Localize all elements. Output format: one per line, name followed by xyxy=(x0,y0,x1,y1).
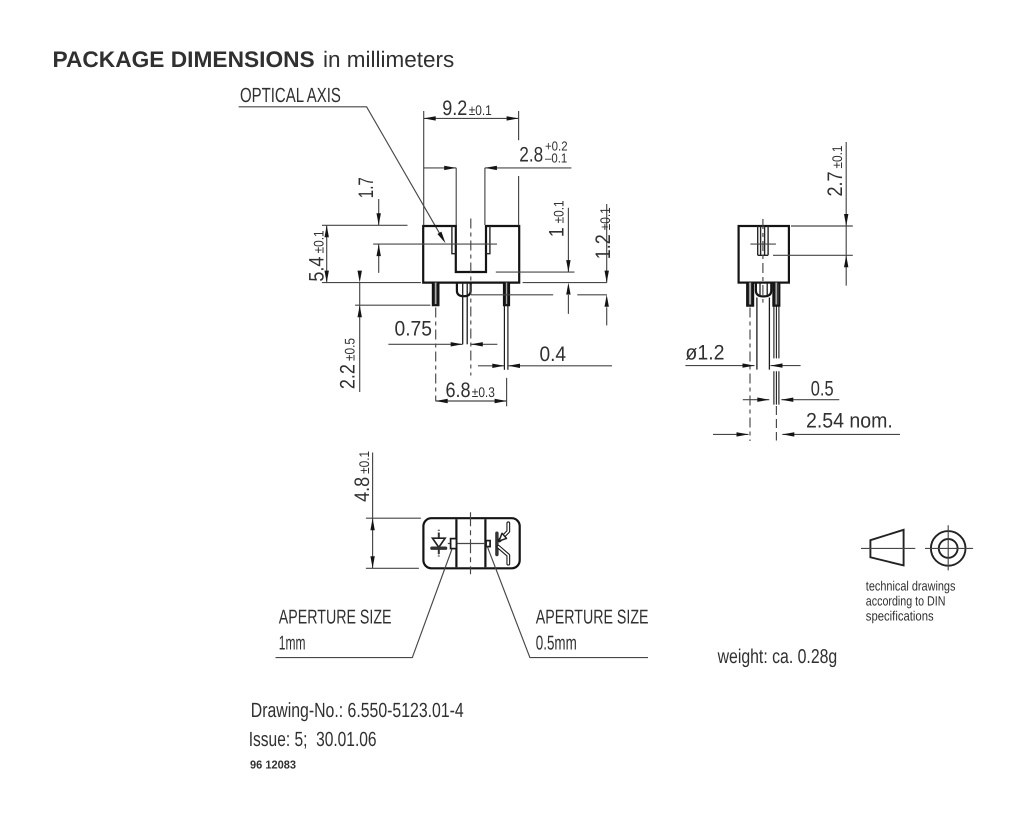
svg-text:5.4: 5.4 xyxy=(305,256,328,281)
svg-text:1.2: 1.2 xyxy=(592,234,615,259)
svg-text:0.5: 0.5 xyxy=(811,378,834,401)
svg-text:±0.1: ±0.1 xyxy=(356,451,372,474)
svg-text:1: 1 xyxy=(546,227,569,237)
svg-text:1.7: 1.7 xyxy=(355,177,378,198)
svg-text:1mm: 1mm xyxy=(279,633,306,655)
svg-text:2.54 nom.: 2.54 nom. xyxy=(806,410,893,433)
svg-text:±0.3: ±0.3 xyxy=(472,384,495,400)
svg-text:APERTURE SIZE: APERTURE SIZE xyxy=(279,606,392,628)
svg-text:9.2: 9.2 xyxy=(442,97,467,120)
svg-text:0.5mm: 0.5mm xyxy=(536,633,577,655)
svg-text:OPTICAL AXIS: OPTICAL AXIS xyxy=(240,84,341,107)
svg-text:±0.1: ±0.1 xyxy=(597,207,613,230)
svg-text:0.75: 0.75 xyxy=(395,318,432,341)
svg-text:96 12083: 96 12083 xyxy=(250,760,296,772)
svg-text:technical drawings: technical drawings xyxy=(866,579,956,594)
svg-text:0.4: 0.4 xyxy=(540,343,567,366)
svg-text:APERTURE SIZE: APERTURE SIZE xyxy=(536,606,649,628)
svg-text:in millimeters: in millimeters xyxy=(323,47,454,72)
svg-text:2.2: 2.2 xyxy=(336,364,359,389)
svg-text:2.8: 2.8 xyxy=(519,144,543,167)
svg-text:2.7: 2.7 xyxy=(824,172,847,197)
svg-text:±0.1: ±0.1 xyxy=(469,102,492,118)
svg-text:–0.1: –0.1 xyxy=(545,151,567,166)
svg-text:6.8: 6.8 xyxy=(446,379,471,402)
svg-text:specifications: specifications xyxy=(866,609,934,624)
svg-text:±0.1: ±0.1 xyxy=(829,145,845,168)
svg-text:ø1.2: ø1.2 xyxy=(685,341,724,364)
svg-text:according to DIN: according to DIN xyxy=(866,594,946,609)
svg-text:±0.5: ±0.5 xyxy=(341,338,357,361)
svg-text:Issue: 5; 30.01.06: Issue: 5; 30.01.06 xyxy=(249,728,377,751)
svg-text:PACKAGE DIMENSIONS: PACKAGE DIMENSIONS xyxy=(53,47,315,72)
svg-text:±0.1: ±0.1 xyxy=(551,200,567,223)
svg-text:Drawing-No.: 6.550-5123.01-4: Drawing-No.: 6.550-5123.01-4 xyxy=(251,699,464,722)
svg-text:±0.1: ±0.1 xyxy=(310,230,326,253)
svg-text:weight: ca. 0.28g: weight: ca. 0.28g xyxy=(717,646,837,668)
svg-text:4.8: 4.8 xyxy=(351,477,374,502)
